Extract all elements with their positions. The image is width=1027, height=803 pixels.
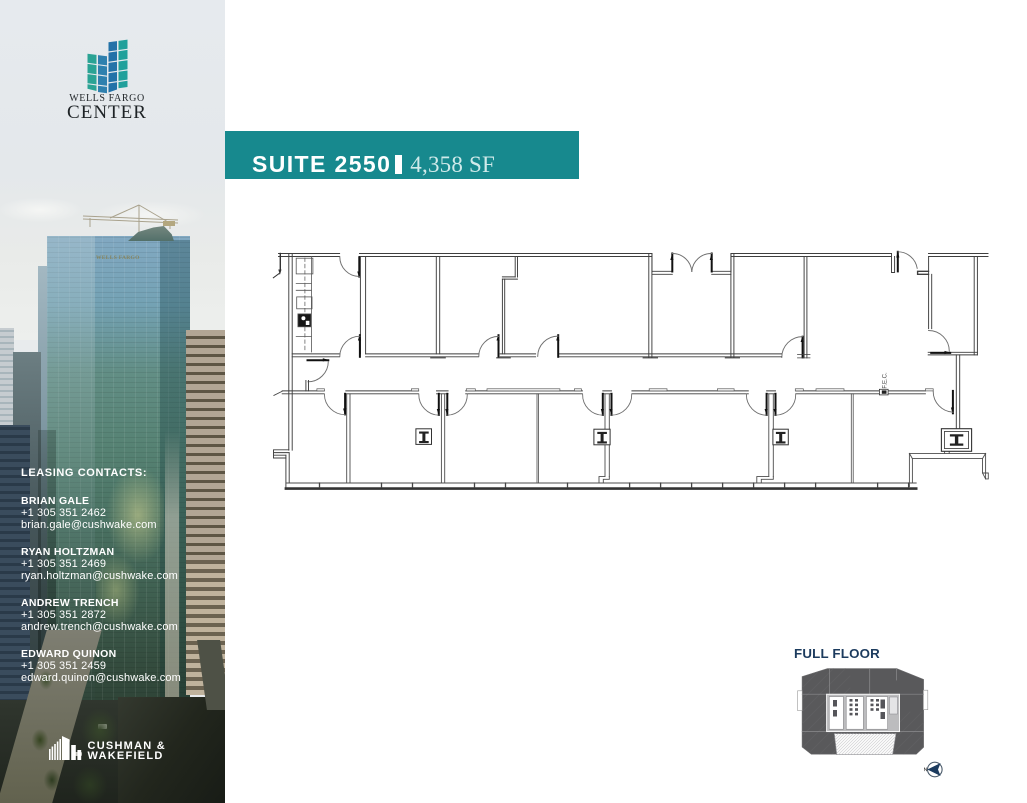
svg-text:F.E.C.: F.E.C. <box>883 372 889 389</box>
